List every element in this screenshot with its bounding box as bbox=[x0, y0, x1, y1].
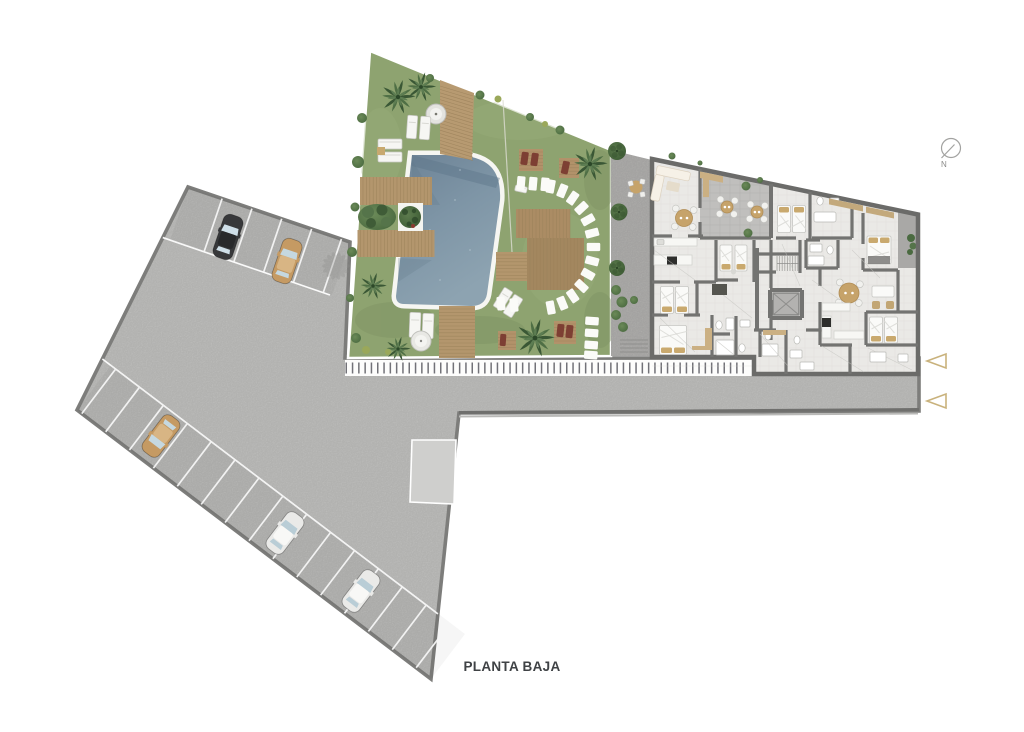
svg-text:N: N bbox=[941, 160, 947, 169]
svg-text:PLANTA BAJA: PLANTA BAJA bbox=[463, 659, 560, 674]
